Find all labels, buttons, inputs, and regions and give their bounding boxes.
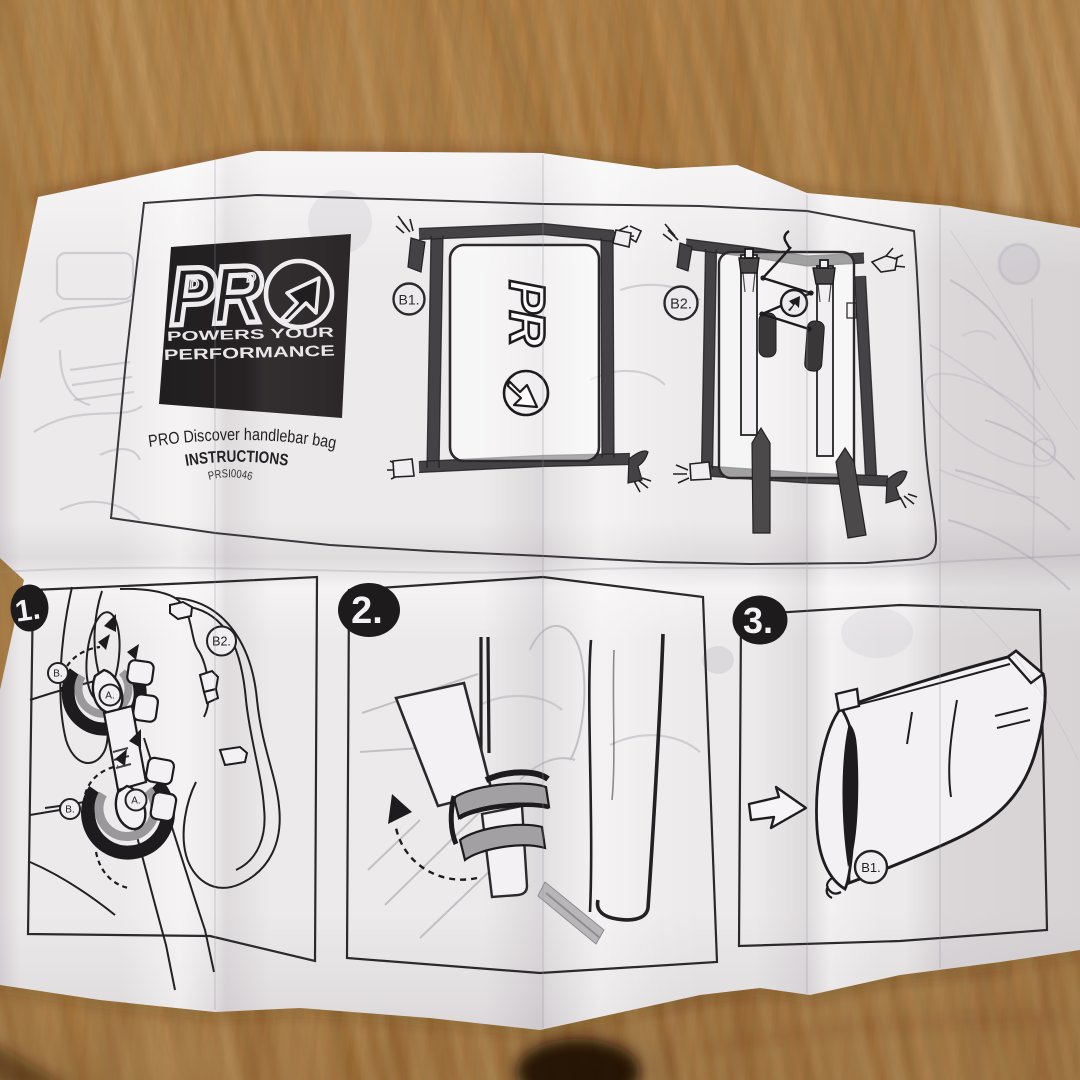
svg-text:3.: 3.	[743, 600, 773, 641]
svg-text:A.: A.	[131, 796, 140, 807]
svg-text:A.: A.	[105, 691, 114, 702]
svg-text:PRSI0046: PRSI0046	[207, 468, 254, 483]
svg-text:2.: 2.	[351, 590, 383, 632]
svg-text:D: D	[189, 276, 200, 292]
svg-text:B1.: B1.	[398, 292, 419, 308]
svg-text:D: D	[246, 269, 257, 285]
svg-text:B1.: B1.	[861, 860, 881, 875]
svg-text:B.: B.	[65, 805, 74, 816]
svg-text:1.: 1.	[13, 593, 42, 629]
svg-text:B2.: B2.	[670, 297, 692, 313]
svg-text:INSTRUCTIONS: INSTRUCTIONS	[184, 448, 290, 470]
svg-text:B.: B.	[53, 669, 62, 680]
svg-text:PR: PR	[499, 280, 555, 346]
